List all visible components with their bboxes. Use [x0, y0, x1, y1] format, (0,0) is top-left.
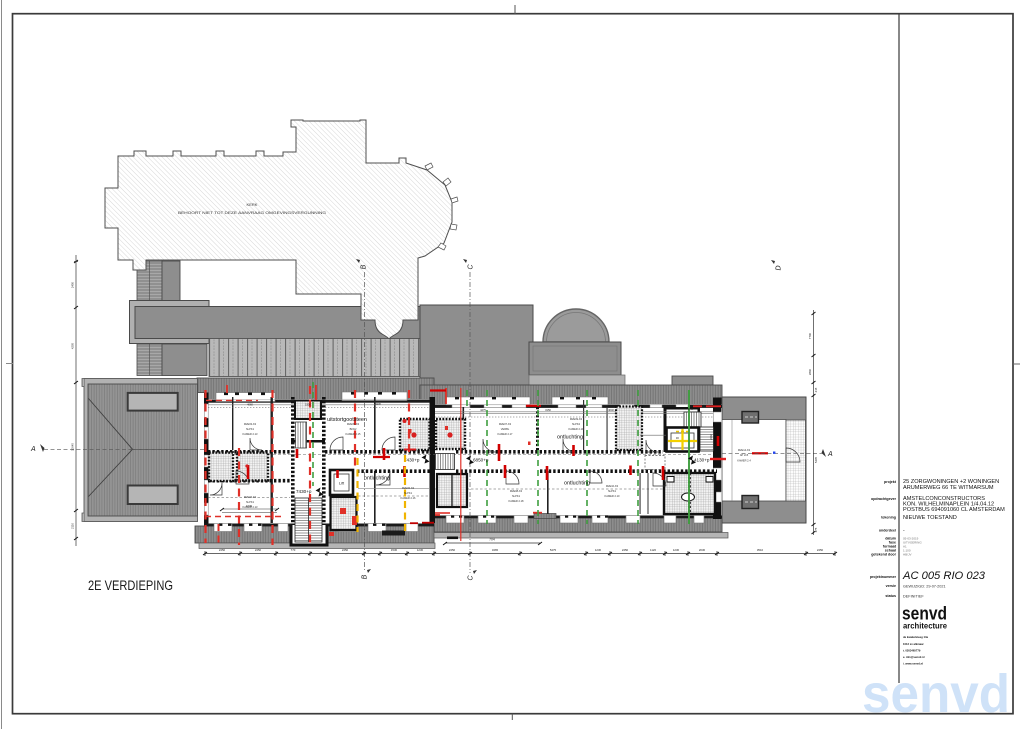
svg-text:4205: 4205 [71, 342, 75, 349]
svg-text:onderdeel: onderdeel [879, 529, 896, 533]
svg-text:senvd: senvd [902, 604, 947, 624]
svg-text:2860: 2860 [808, 368, 812, 375]
svg-text:M2E03-K3: M2E03-K3 [244, 495, 257, 499]
svg-text:SLPK1: SLPK1 [512, 494, 521, 498]
svg-text:704: 704 [489, 538, 495, 542]
svg-text:1230: 1230 [417, 548, 424, 552]
svg-text:A: A [827, 451, 833, 458]
svg-text:2450: 2450 [622, 548, 629, 552]
svg-text:BLW2: BLW2 [350, 427, 357, 431]
svg-text:KAMER 2.13: KAMER 2.13 [243, 505, 259, 509]
svg-text:1900: 1900 [305, 403, 311, 407]
svg-text:B: B [361, 264, 368, 269]
svg-text:2450: 2450 [255, 548, 262, 552]
svg-text:SLPK1: SLPK1 [246, 427, 255, 431]
svg-text:KAMER 2.4: KAMER 2.4 [737, 459, 751, 463]
svg-text:M2E14-K3: M2E14-K3 [738, 448, 751, 452]
svg-text:KAMER 2.16: KAMER 2.16 [401, 496, 417, 500]
svg-text:status: status [885, 594, 896, 598]
svg-text:e. info@senvd.nl: e. info@senvd.nl [903, 655, 925, 659]
svg-text:senvd: senvd [862, 664, 1010, 724]
svg-text:2450: 2450 [342, 548, 349, 552]
svg-text:de kwakelsteeg 14a: de kwakelsteeg 14a [903, 635, 928, 639]
svg-text:Lift: Lift [339, 481, 345, 486]
svg-text:AC 005 RIO 023: AC 005 RIO 023 [902, 570, 986, 582]
svg-text:KAMER 2.19: KAMER 2.19 [569, 427, 585, 431]
svg-text:1230: 1230 [673, 548, 680, 552]
svg-text:3510: 3510 [757, 548, 764, 552]
svg-text:2E VERDIEPING: 2E VERDIEPING [88, 577, 173, 593]
svg-text:2030: 2030 [699, 548, 706, 552]
svg-text:4130+p: 4130+p [694, 458, 710, 463]
svg-text:projektnummer: projektnummer [870, 575, 897, 579]
svg-text:architecture: architecture [903, 622, 948, 631]
svg-text:2450: 2450 [71, 281, 75, 288]
svg-text:VERBL: VERBL [501, 427, 510, 431]
svg-text:KAMER 2.13: KAMER 2.13 [243, 432, 259, 436]
svg-text:770: 770 [291, 548, 296, 552]
svg-text:M2E06-K3: M2E06-K3 [402, 486, 415, 490]
svg-text:opdrachtgever: opdrachtgever [871, 497, 897, 501]
svg-text:7430+p: 7430+p [296, 489, 312, 494]
svg-text:1012 xx alkmaar: 1012 xx alkmaar [903, 642, 924, 646]
svg-text:projekt: projekt [884, 480, 897, 484]
svg-text:7430+p: 7430+p [404, 458, 420, 463]
svg-text:HB/JV: HB/JV [903, 553, 912, 557]
svg-text:GEWIJZIGD: 29-07-2021: GEWIJZIGD: 29-07-2021 [903, 585, 946, 589]
svg-text:KAMER 2.10: KAMER 2.10 [605, 494, 621, 498]
svg-text:2450: 2450 [219, 548, 226, 552]
svg-text:2450: 2450 [817, 548, 824, 552]
svg-text:1120: 1120 [650, 548, 656, 552]
svg-text:ontluchting: ontluchting [557, 435, 583, 441]
svg-text:SLPK1: SLPK1 [608, 489, 617, 493]
svg-text:M2E09-K3: M2E09-K3 [570, 417, 583, 421]
svg-text:getekend door: getekend door [871, 553, 896, 557]
svg-text:ontluchting: ontluchting [364, 476, 390, 482]
svg-text:375: 375 [814, 527, 818, 532]
svg-text:4040: 4040 [608, 408, 614, 412]
svg-text:4060: 4060 [247, 403, 253, 407]
svg-text:M2E05-K3: M2E05-K3 [347, 422, 360, 426]
svg-text:KERK: KERK [247, 202, 258, 207]
svg-text:M2E07-K3: M2E07-K3 [499, 422, 512, 426]
svg-text:B: B [362, 574, 369, 579]
svg-text:7700: 7700 [808, 332, 812, 339]
svg-text:D: D [776, 265, 783, 270]
svg-text:SLPK1: SLPK1 [246, 500, 255, 504]
svg-text:1230: 1230 [595, 548, 602, 552]
svg-text:t. 0203465779: t. 0203465779 [903, 649, 921, 653]
svg-text:10045: 10045 [71, 443, 75, 451]
svg-text:KAMER 2.17: KAMER 2.17 [498, 432, 514, 436]
svg-text:M2E03-K3: M2E03-K3 [244, 422, 257, 426]
svg-text:versie: versie [886, 584, 896, 588]
svg-text:2110: 2110 [71, 523, 75, 529]
svg-text:POSTBUS 694091060 CL AMSTERDAM: POSTBUS 694091060 CL AMSTERDAM [903, 507, 1005, 513]
svg-text:BEHOORT NIET TOT DEZE AANVRAAG: BEHOORT NIET TOT DEZE AANVRAAG OMGEVINGS… [178, 210, 326, 215]
svg-text:5475: 5475 [550, 548, 557, 552]
svg-text:4475: 4475 [480, 408, 486, 412]
svg-text:M2E08-K3: M2E08-K3 [510, 489, 523, 493]
svg-text:M2E10-K3: M2E10-K3 [606, 484, 619, 488]
svg-text:KAMER 2.18: KAMER 2.18 [509, 499, 525, 503]
svg-text:SLPK1: SLPK1 [404, 491, 413, 495]
svg-text:NIEUWE TOESTAND: NIEUWE TOESTAND [903, 515, 957, 521]
svg-text:6850+p: 6850+p [473, 458, 489, 463]
svg-text:ontluchting: ontluchting [564, 481, 590, 487]
svg-text:415: 415 [814, 387, 818, 392]
svg-text:1530: 1530 [391, 548, 398, 552]
svg-text:AP 2x5: AP 2x5 [740, 453, 749, 457]
svg-text:tekening: tekening [881, 516, 896, 520]
svg-text:DEFINITIEF: DEFINITIEF [903, 595, 924, 599]
svg-text:3150: 3150 [545, 408, 551, 412]
svg-text:3430: 3430 [375, 402, 381, 406]
svg-text:2450: 2450 [449, 548, 456, 552]
svg-text:4040: 4040 [687, 407, 693, 411]
svg-text:lift: lift [676, 436, 679, 440]
svg-text:5405: 5405 [814, 456, 818, 463]
svg-text:3465: 3465 [492, 548, 499, 552]
svg-text:A: A [30, 446, 36, 453]
svg-text:SLPK2: SLPK2 [572, 422, 581, 426]
svg-text:KAMER 2.15: KAMER 2.15 [346, 432, 362, 436]
svg-text:2242: 2242 [709, 434, 713, 440]
svg-text:ARUMERWEG 66 TE WITMARSUM: ARUMERWEG 66 TE WITMARSUM [903, 485, 994, 491]
